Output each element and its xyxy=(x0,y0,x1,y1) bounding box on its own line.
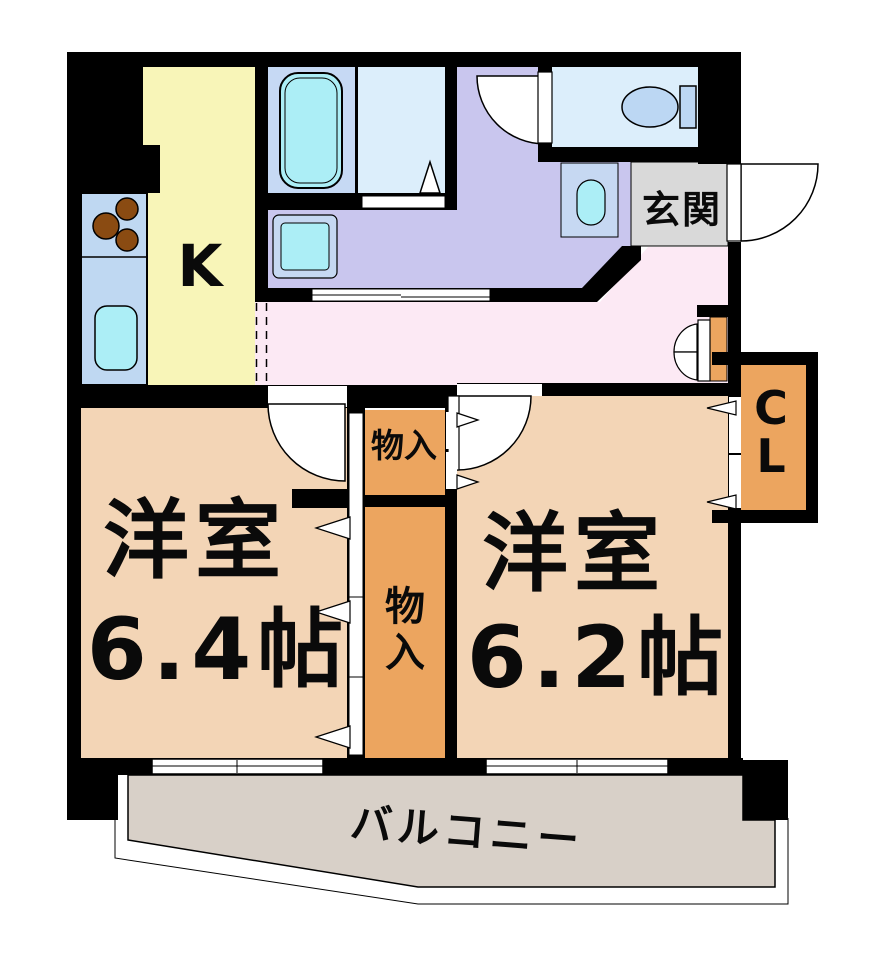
wall-bath-right xyxy=(445,52,457,210)
toilet-tank xyxy=(680,86,696,128)
wall-bottom-right-block xyxy=(743,760,788,820)
entrance-door-leaf xyxy=(727,164,741,241)
room-left-name-label: 洋室 xyxy=(103,491,287,591)
toilet-bowl xyxy=(622,87,678,127)
wall-top xyxy=(67,52,741,67)
storage-top-door-gap xyxy=(446,452,457,489)
closet-sliding-doors xyxy=(349,413,363,755)
wall-toilet-jamb-bottom xyxy=(538,143,552,162)
entrance-label: 玄関 xyxy=(642,188,722,232)
room-right-door-opening xyxy=(457,384,542,396)
floorplan-page: K 玄関 物入 物 入 C L 洋室 6.4帖 洋室 6.2帖 バルコニー xyxy=(0,0,892,956)
shoe-cabinet-door-leaf xyxy=(698,320,710,381)
wall-bath-divider xyxy=(355,65,358,193)
storage-tall-label-char: 物 xyxy=(385,584,425,630)
room-right-name-label: 洋室 xyxy=(482,504,666,604)
wall-cabinet-frame xyxy=(697,305,728,317)
wall-hall-bottom-left xyxy=(67,385,457,408)
storage-tall-label-char: 入 xyxy=(385,630,425,676)
floorplan-drawing: K 玄関 物入 物 入 C L 洋室 6.4帖 洋室 6.2帖 バルコニー xyxy=(0,0,892,956)
stove-burner xyxy=(116,229,138,251)
wall-toilet-jamb-top xyxy=(538,52,552,72)
washing-machine-pan-inner xyxy=(281,223,329,270)
stove-burner xyxy=(116,198,138,220)
entrance-door-swing xyxy=(741,164,818,241)
wall-left xyxy=(67,52,81,772)
room-left-size-label: 6.4帖 xyxy=(87,600,349,700)
wall-cl-right xyxy=(806,365,818,523)
wall-bottom-left-block xyxy=(67,772,118,820)
closet-label-char: C xyxy=(754,381,788,435)
closet-label-char: L xyxy=(756,429,785,483)
storage-top-door-gap xyxy=(446,412,457,449)
shoe-cabinet-area xyxy=(710,317,727,381)
washbasin-bowl xyxy=(577,180,605,225)
kitchen-label: K xyxy=(178,232,225,300)
kitchen-sink xyxy=(95,306,137,370)
stove-burner xyxy=(93,213,119,239)
room-right-size-label: 6.2帖 xyxy=(467,608,729,708)
wall-top-left-notch xyxy=(143,145,160,193)
toilet-door-leaf xyxy=(538,72,552,143)
wall-kitchen-bath xyxy=(255,52,268,302)
bathtub xyxy=(280,73,342,188)
wall-cl-top xyxy=(712,352,818,365)
wall-top-right-block xyxy=(698,52,741,164)
bathroom-door-sill xyxy=(362,196,445,208)
wall-cl-bottom xyxy=(712,510,818,523)
storage-top-label: 物入 xyxy=(371,426,437,465)
